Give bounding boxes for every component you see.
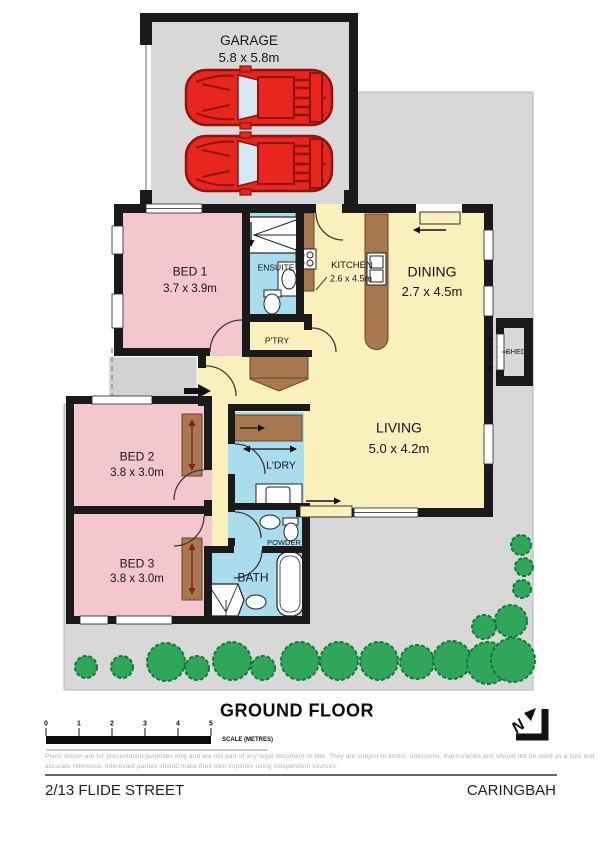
kitchen-dims: 2.6 x 4.5m [330, 274, 372, 283]
disclaimer-line-1: Plans shown are for presentation purpose… [45, 753, 594, 760]
garage-label: GARAGE [220, 34, 278, 48]
ensuite-label: ENSUITE [258, 264, 295, 273]
bed2-dims: 3.8 x 3.0m [110, 467, 164, 479]
bed3-dims: 3.8 x 3.0m [110, 573, 164, 585]
pantry-label: P'TRY [265, 337, 289, 346]
disclaimer-line-2: accurate reference. Interested parties s… [45, 763, 338, 770]
bed1-dims: 3.7 x 3.9m [163, 283, 217, 295]
scale-tick-4: 4 [176, 721, 180, 728]
living-label: LIVING [376, 421, 422, 436]
bed1-label: BED 1 [173, 266, 208, 279]
kitchen-label: KITCHEN [331, 261, 373, 271]
bed2-label: BED 2 [120, 451, 155, 464]
street-address: 2/13 FLIDE STREET [45, 782, 184, 799]
car-1 [186, 66, 332, 129]
living-dims: 5.0 x 4.2m [369, 442, 430, 456]
bath-label: BATH [237, 572, 268, 585]
scale-tick-1: 1 [77, 721, 81, 728]
car-2 [186, 132, 332, 195]
bed3-label: BED 3 [120, 558, 155, 571]
scale-tick-5: 5 [209, 721, 213, 728]
floorplan-page: N GARAGE 5.8 x 5.8m BED 1 3.7 x 3.9m ENS… [0, 0, 600, 847]
north-arrow-icon: N [509, 708, 545, 737]
scale-tick-3: 3 [143, 721, 147, 728]
suburb: CARINGBAH [467, 782, 556, 799]
garage-dims: 5.8 x 5.8m [219, 51, 280, 65]
scale-tick-2: 2 [110, 721, 114, 728]
dining-label: DINING [408, 265, 457, 280]
powder-label: POWDER [267, 539, 301, 547]
scale-units-label: SCALE (METRES) [222, 737, 273, 743]
dining-dims: 2.7 x 4.5m [402, 285, 463, 299]
scale-tick-0: 0 [44, 721, 48, 728]
shed-label: SHED [506, 348, 527, 356]
laundry-label: L'DRY [266, 460, 296, 471]
page-title: GROUND FLOOR [220, 702, 374, 721]
